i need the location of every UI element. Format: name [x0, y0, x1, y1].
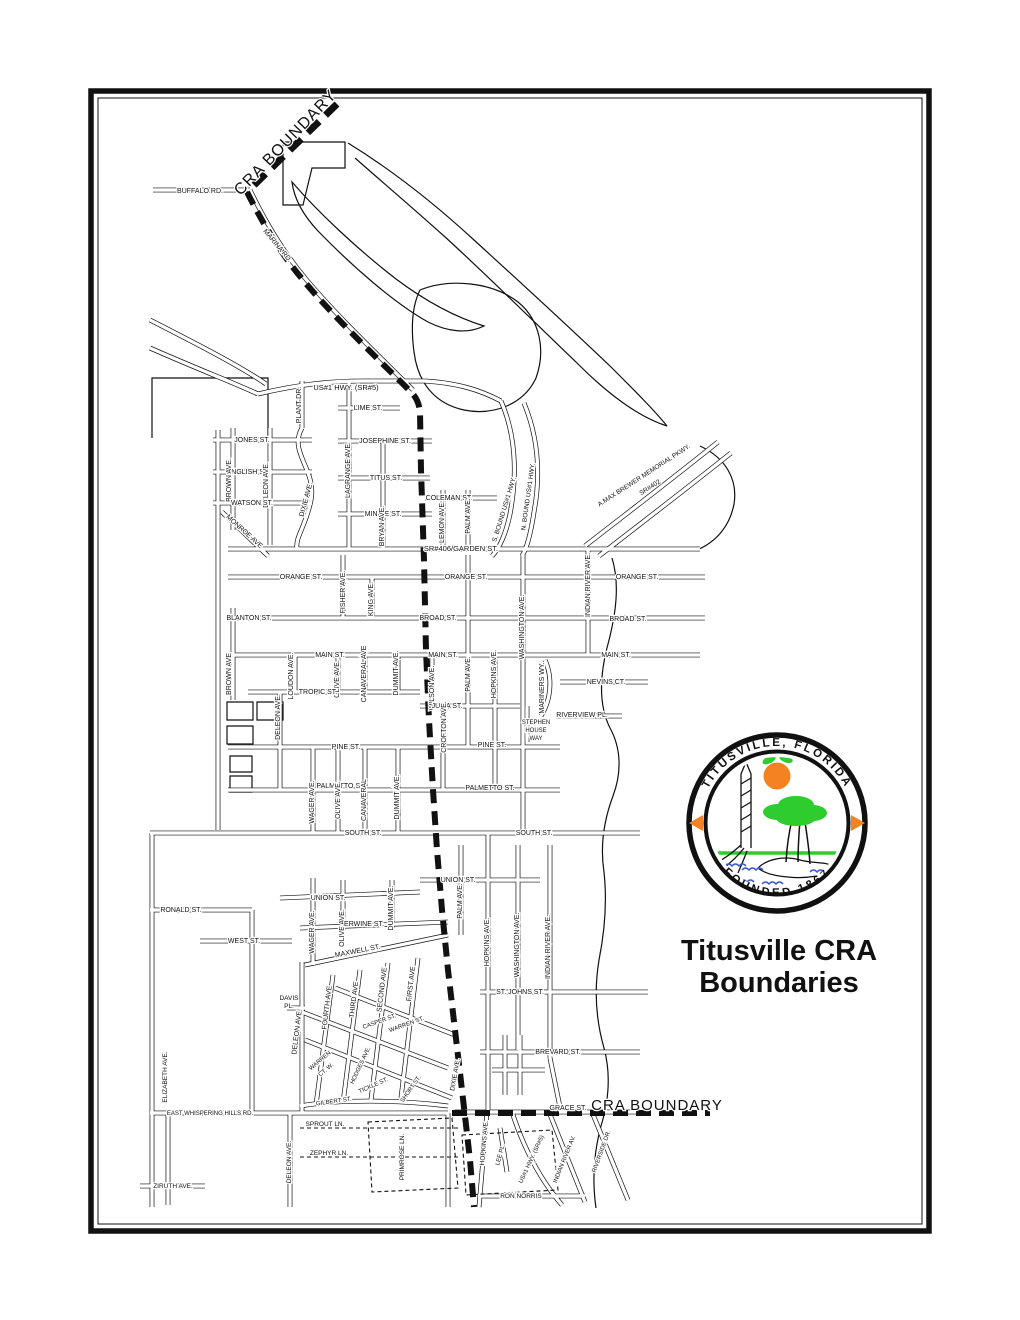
- map-canvas: CRA BOUNDARYBUFFALO RD.MARINA RD.US#1 HW…: [0, 0, 1020, 1320]
- street-label: BREVARD ST.: [535, 1049, 580, 1056]
- street-label: WEST ST.: [228, 938, 260, 945]
- road-casing: [425, 381, 501, 401]
- street-label: OLIVE AVE.: [335, 781, 342, 819]
- street-label: TITUS ST.: [370, 475, 402, 482]
- street-label: CRA BOUNDARY: [591, 1097, 723, 1114]
- street-label: HOUSE: [525, 728, 546, 734]
- street-label: WASHINGTON AVE.: [519, 595, 526, 660]
- street-label: NEVINS CT.: [587, 679, 626, 686]
- street-label: DELEON AVE.: [286, 1141, 293, 1184]
- street-label: RONALD ST.: [160, 907, 201, 914]
- street-label: TROPIC ST.: [299, 689, 338, 696]
- street-label: JONES ST.: [234, 437, 269, 444]
- road-fill: [599, 453, 731, 556]
- street-label: STEPHEN: [522, 720, 550, 726]
- street-label: PALM AVE.: [457, 883, 464, 919]
- street-label: JOSEPHINE ST.: [359, 438, 411, 445]
- shoreline-lines: [152, 142, 735, 1208]
- street-labels: CRA BOUNDARYBUFFALO RD.MARINA RD.US#1 HW…: [153, 87, 723, 1200]
- street-label: ST. JOHNS ST.: [496, 989, 544, 996]
- street-label: UNION ST.: [441, 877, 476, 884]
- street-label: WAGER AVE.: [309, 780, 316, 823]
- street-label: LIME ST.: [354, 405, 382, 412]
- shoreline: [230, 756, 252, 772]
- street-label: PRIMROSE LN.: [399, 1134, 406, 1181]
- street-label: WAY: [530, 736, 543, 742]
- street-label: LEMON AVE.: [439, 501, 446, 543]
- street-label: MAIN ST.: [428, 652, 458, 659]
- dashed-outline: [368, 1118, 458, 1192]
- shoreline: [697, 446, 735, 550]
- street-label: SOUTH ST.: [516, 830, 553, 837]
- street-label: BROWN AVE.: [226, 458, 233, 502]
- street-label: MARINERS WY.: [539, 662, 546, 713]
- map-title-line1: Titusville CRA: [681, 935, 877, 967]
- street-label: GRACE ST.: [550, 1105, 587, 1112]
- street-label: BLANTON ST.: [227, 615, 272, 622]
- street-label: DUMMIT AVE.: [393, 651, 400, 696]
- road-fill: [585, 442, 718, 546]
- street-label: ORANGE ST.: [445, 574, 487, 581]
- street-label: PLANT DR.: [296, 387, 303, 423]
- orange-fruit-icon: [764, 763, 791, 790]
- street-label: HOPKINS AVE.: [491, 650, 498, 699]
- street-label: WASHINGTON AVE.: [514, 913, 521, 978]
- street-label: HOPKINS AVE.: [484, 918, 491, 967]
- street-label: CANAVERAL AVE: [361, 645, 368, 702]
- street-label: BROAD ST.: [610, 616, 647, 623]
- street-label: CROFTON AVE.: [441, 701, 448, 753]
- street-label: ELIZABETH AVE.: [162, 1051, 169, 1102]
- street-label: MAIN ST.: [601, 652, 631, 659]
- street-label: GILBERT ST.: [316, 1097, 353, 1108]
- shoreline: [227, 702, 253, 720]
- street-label: PL.: [284, 1003, 294, 1010]
- street-label: RIVERVIEW PL.: [556, 712, 608, 719]
- street-label: BROWN AVE: [226, 653, 233, 695]
- street-label: PALM AVE.: [465, 498, 472, 534]
- page: CRA BOUNDARYBUFFALO RD.MARINA RD.US#1 HW…: [0, 0, 1020, 1320]
- street-label: US#1 HWY. (SR#5): [313, 383, 379, 392]
- shoreline: [152, 378, 268, 438]
- shoreline: [292, 182, 484, 331]
- street-label: KING AVE.: [368, 582, 375, 616]
- road-casing: [250, 190, 413, 390]
- street-label: ERWINE ST.: [344, 921, 384, 928]
- shoreline: [348, 143, 667, 426]
- street-label: LAGRANGE AVE.: [345, 442, 352, 498]
- road-fill: [550, 1058, 561, 1112]
- street-label: CRA BOUNDARY: [231, 87, 340, 199]
- street-label: ZEPHYR LN.: [310, 1150, 348, 1157]
- street-label: PALMETTO ST.: [465, 785, 514, 792]
- street-label: MARINA RD.: [261, 228, 293, 264]
- street-label: INDIAN RIVER AVE.: [545, 915, 552, 979]
- street-label: HOPKINS AVE.: [479, 1120, 490, 1166]
- seal-outer-ring: [689, 735, 865, 911]
- street-label: BROAD ST.: [420, 615, 457, 622]
- street-label: SR#406/GARDEN ST.: [424, 544, 498, 553]
- street-label: DUMMIT AVE.: [394, 775, 401, 820]
- street-label: BRYAN AVE.: [379, 506, 386, 547]
- shoreline: [227, 726, 253, 744]
- street-label: LOUDON AVE.: [288, 652, 295, 699]
- street-label: ORANGE ST.: [616, 574, 658, 581]
- street-label: MONROE AVE: [224, 514, 264, 551]
- street-label: RON NORRIS: [500, 1193, 542, 1200]
- street-label: ZIRUTH AVE.: [153, 1183, 193, 1190]
- street-label: SOUTH ST.: [345, 830, 382, 837]
- map-frame-inner: [98, 98, 922, 1224]
- street-label: INDIAN RIVER AVE.: [585, 553, 592, 617]
- street-label: WAGER AVE.: [309, 910, 316, 953]
- street-label: CANAVERAL: [361, 779, 368, 821]
- city-seal: TITUSVILLE, FLORIDA FOUNDED 1867: [689, 735, 865, 911]
- street-label: DAVIS: [279, 995, 299, 1002]
- street-label: EAST WHISPERING HILLS RD.: [167, 1111, 254, 1117]
- street-label: DUMMIT AVE.: [388, 886, 395, 931]
- street-label: PINE ST.: [478, 742, 506, 749]
- street-label: MAIN ST.: [315, 652, 345, 659]
- street-label: BUFFALO RD.: [177, 188, 223, 195]
- street-label: PINE ST.: [332, 744, 360, 751]
- street-label: FISHER AVE.: [340, 571, 347, 614]
- street-label: UNION ST.: [311, 895, 346, 902]
- street-label: ORANGE ST.: [280, 574, 322, 581]
- map-title-line2: Boundaries: [699, 967, 859, 999]
- street-label: SPROUT LN.: [306, 1121, 345, 1128]
- street-label: WATSON ST.: [231, 500, 273, 507]
- street-label: PALM AVE.: [465, 656, 472, 692]
- street-label: DELEON AVE.: [275, 694, 282, 740]
- road-fill: [250, 190, 413, 390]
